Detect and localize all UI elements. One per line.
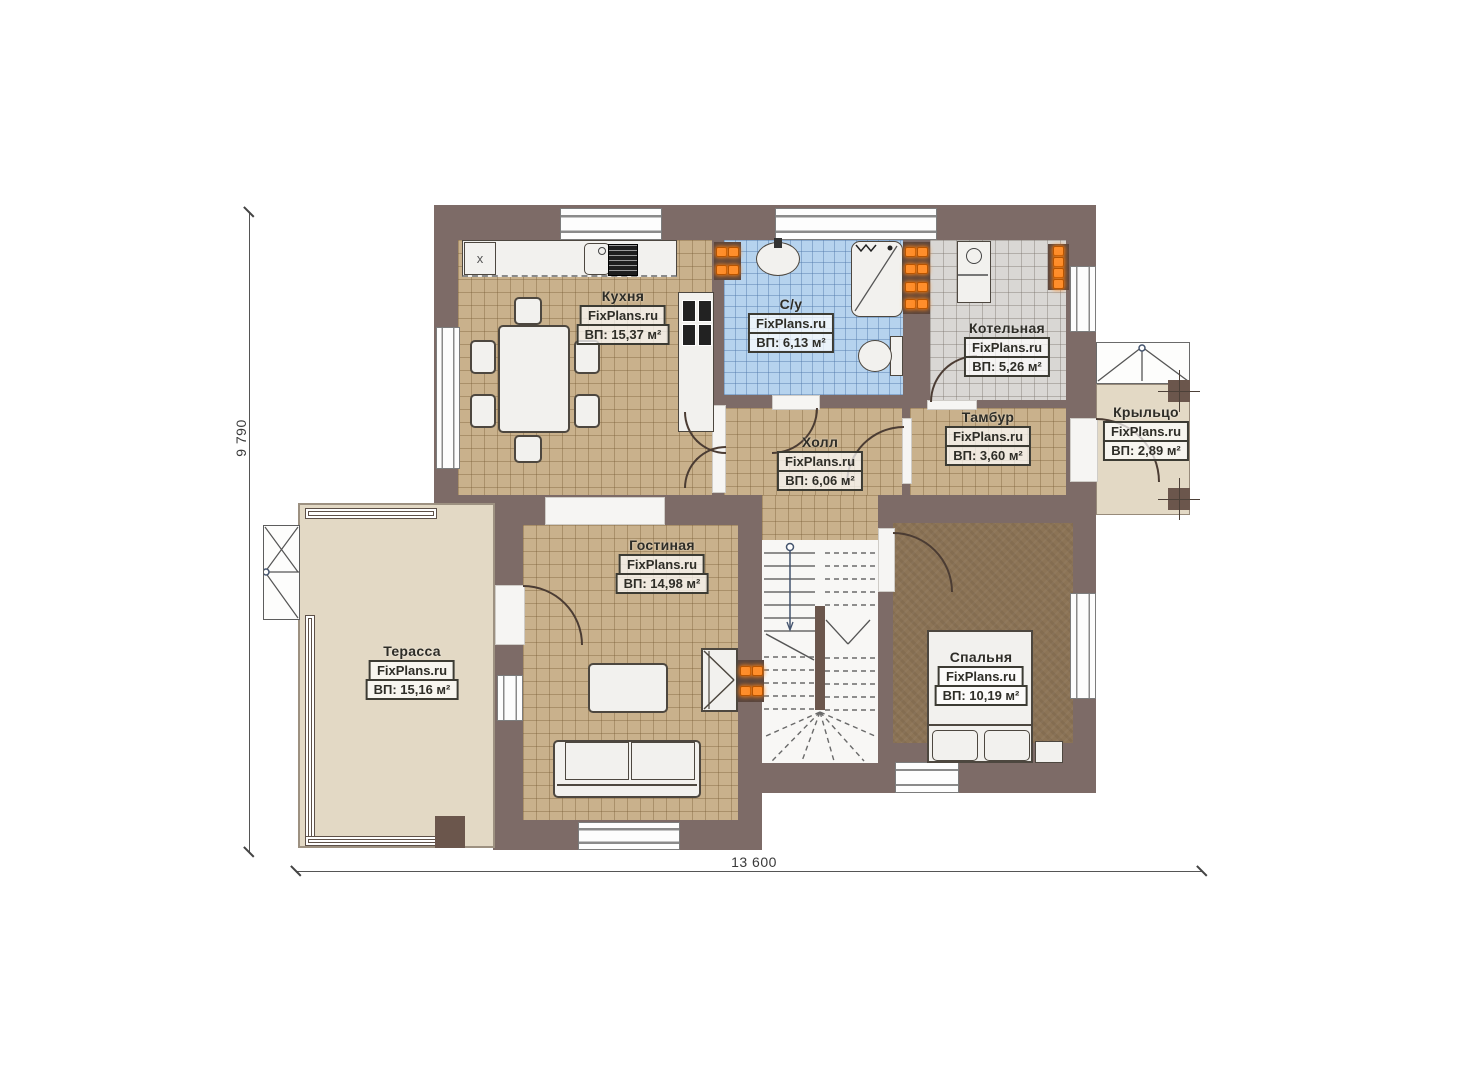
room-area: ВП: 6,06 м² — [777, 470, 863, 491]
terrace-steps — [263, 525, 300, 620]
room-name: С/у — [780, 296, 803, 312]
room-label-terrace: Терасса FixPlans.ru ВП: 15,16 м² — [366, 643, 459, 700]
porch-post-top — [1168, 380, 1190, 402]
brand-tag: FixPlans.ru — [580, 305, 666, 326]
room-label-bathroom: С/у FixPlans.ru ВП: 6,13 м² — [748, 296, 834, 353]
window-bedroom-east — [1070, 593, 1096, 699]
window-boiler-east — [1070, 266, 1096, 332]
window-bathroom-top — [775, 208, 937, 240]
room-name: Холл — [802, 434, 838, 450]
room-area: ВП: 14,98 м² — [616, 573, 709, 594]
brand-tag: FixPlans.ru — [369, 660, 455, 681]
window-living-west — [497, 675, 523, 721]
staircase-drawing — [762, 540, 878, 763]
toilet-bowl — [858, 340, 892, 372]
dimension-height-label: 9 790 — [233, 415, 249, 461]
staircase-area — [762, 540, 878, 763]
boiler-unit — [957, 241, 991, 303]
room-label-kitchen: Кухня FixPlans.ru ВП: 15,37 м² — [577, 288, 670, 345]
stair-divider-wall — [815, 606, 825, 710]
dimension-line-horizontal — [296, 871, 1202, 872]
room-name: Спальня — [950, 649, 1013, 665]
opening-kitchen-living — [545, 497, 665, 525]
dining-table — [498, 325, 570, 433]
terrace-railing-bottom — [305, 836, 439, 846]
radiator — [714, 242, 741, 280]
brand-tag: FixPlans.ru — [938, 666, 1024, 687]
window-bedroom-south — [895, 762, 959, 793]
door-opening-terrace — [495, 585, 525, 645]
brand-tag: FixPlans.ru — [945, 426, 1031, 447]
radiator — [1048, 244, 1069, 290]
room-label-boiler: Котельная FixPlans.ru ВП: 5,26 м² — [964, 320, 1050, 377]
room-label-living: Гостиная FixPlans.ru ВП: 14,98 м² — [616, 537, 709, 594]
brand-tag: FixPlans.ru — [619, 554, 705, 575]
shower — [851, 241, 903, 317]
door-opening-entrance — [1070, 418, 1098, 482]
room-area: ВП: 2,89 м² — [1103, 440, 1189, 461]
stove — [608, 244, 638, 276]
room-name: Крыльцо — [1113, 404, 1179, 420]
window-kitchen-top — [560, 208, 662, 240]
room-area: ВП: 15,16 м² — [366, 679, 459, 700]
room-area: ВП: 3,60 м² — [945, 445, 1031, 466]
room-area: ВП: 10,19 м² — [935, 685, 1028, 706]
room-label-tambour: Тамбур FixPlans.ru ВП: 3,60 м² — [945, 409, 1031, 466]
room-area: ВП: 6,13 м² — [748, 332, 834, 353]
room-area: ВП: 5,26 м² — [964, 356, 1050, 377]
appliance-box: x — [464, 242, 496, 275]
stair-start-marker — [787, 544, 794, 551]
nightstand — [1035, 741, 1063, 763]
room-label-bedroom: Спальня FixPlans.ru ВП: 10,19 м² — [935, 649, 1028, 706]
terrace-railing-top — [305, 508, 437, 519]
brand-tag: FixPlans.ru — [748, 313, 834, 334]
room-label-porch: Крыльцо FixPlans.ru ВП: 2,89 м² — [1103, 404, 1189, 461]
terrace-post — [435, 816, 465, 848]
fireplace-vent — [701, 648, 738, 712]
dining-chair — [470, 394, 496, 428]
appliance-x-marker: x — [477, 251, 484, 266]
washbasin-tap — [774, 238, 782, 248]
dining-chair — [574, 340, 600, 374]
room-name: Терасса — [383, 643, 441, 659]
window-kitchen-west — [436, 327, 460, 469]
window-living-south — [578, 822, 680, 850]
radiator — [903, 242, 930, 314]
coffee-table — [588, 663, 668, 713]
corridor-floor — [762, 495, 878, 540]
dining-chair — [574, 394, 600, 428]
dining-chair — [514, 435, 542, 463]
porch-steps — [1096, 342, 1190, 384]
room-name: Котельная — [969, 320, 1045, 336]
brand-tag: FixPlans.ru — [1103, 421, 1189, 442]
porch-post-bottom — [1168, 488, 1190, 510]
pillow — [984, 730, 1030, 761]
kitchen-sink — [584, 243, 610, 275]
room-name: Кухня — [602, 288, 644, 304]
radiator — [738, 660, 764, 702]
terrace-railing-left — [305, 615, 315, 845]
room-name: Гостиная — [629, 537, 695, 553]
dining-chair — [470, 340, 496, 374]
dining-chair — [514, 297, 542, 325]
floor-plan: x — [0, 0, 1473, 1080]
vent-grilles — [682, 300, 712, 346]
sofa-backrest-line — [557, 784, 697, 786]
pillow — [932, 730, 978, 761]
dimension-line-vertical — [249, 212, 250, 852]
sofa-cushion — [565, 742, 629, 780]
brand-tag: FixPlans.ru — [777, 451, 863, 472]
dimension-width-label: 13 600 — [724, 854, 784, 870]
brand-tag: FixPlans.ru — [964, 337, 1050, 358]
room-name: Тамбур — [962, 409, 1015, 425]
room-label-hall: Холл FixPlans.ru ВП: 6,06 м² — [777, 434, 863, 491]
sofa-cushion — [631, 742, 695, 780]
room-area: ВП: 15,37 м² — [577, 324, 670, 345]
